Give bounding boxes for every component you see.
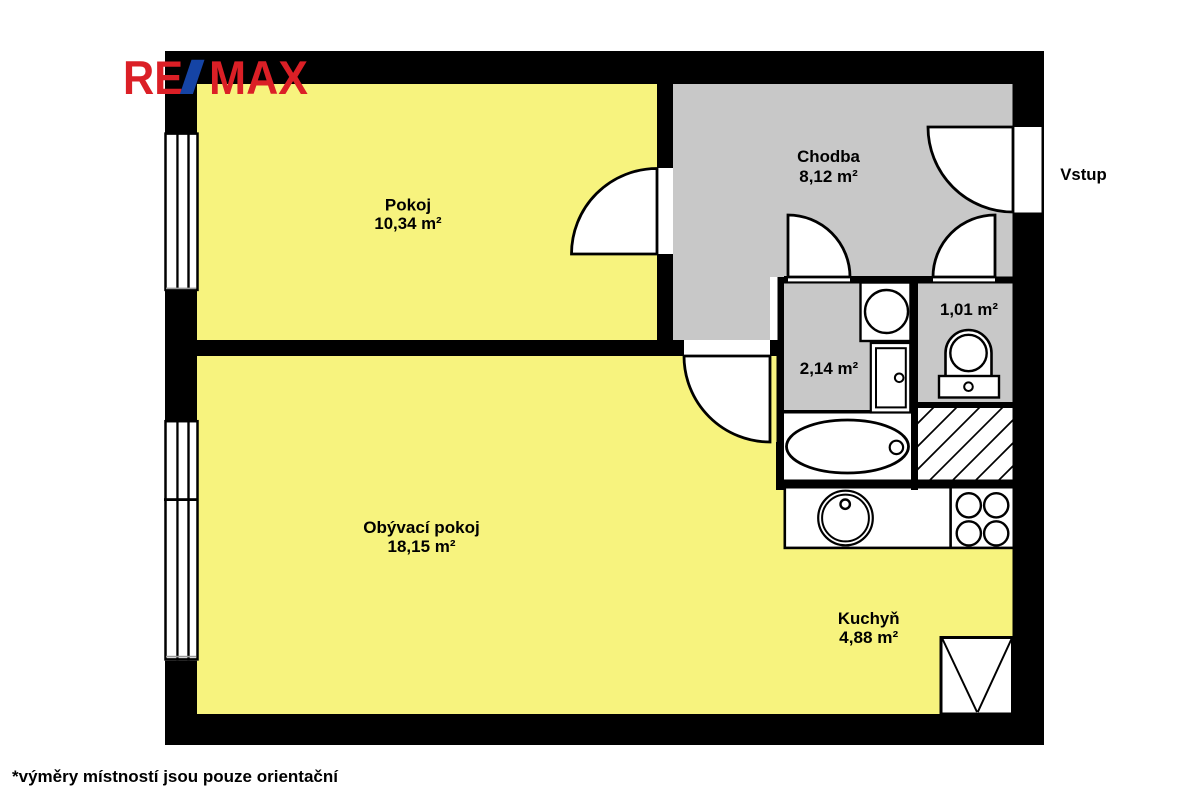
- svg-text:Pokoj: Pokoj: [385, 196, 431, 215]
- svg-text:8,12 m²: 8,12 m²: [799, 167, 858, 186]
- svg-text:18,15 m²: 18,15 m²: [388, 537, 456, 556]
- svg-text:*výměry místností jsou pouze o: *výměry místností jsou pouze orientační: [12, 767, 339, 786]
- svg-text:RE: RE: [123, 51, 183, 104]
- svg-text:2,14 m²: 2,14 m²: [800, 359, 859, 378]
- svg-text:Vstup: Vstup: [1060, 165, 1107, 184]
- svg-text:Kuchyň: Kuchyň: [838, 609, 900, 628]
- svg-text:1,01 m²: 1,01 m²: [940, 300, 998, 319]
- svg-text:MAX: MAX: [209, 51, 308, 104]
- svg-text:Obývací pokoj: Obývací pokoj: [363, 518, 480, 537]
- svg-text:10,34 m²: 10,34 m²: [374, 214, 442, 233]
- svg-text:4,88 m²: 4,88 m²: [839, 628, 898, 647]
- svg-text:Chodba: Chodba: [797, 147, 860, 166]
